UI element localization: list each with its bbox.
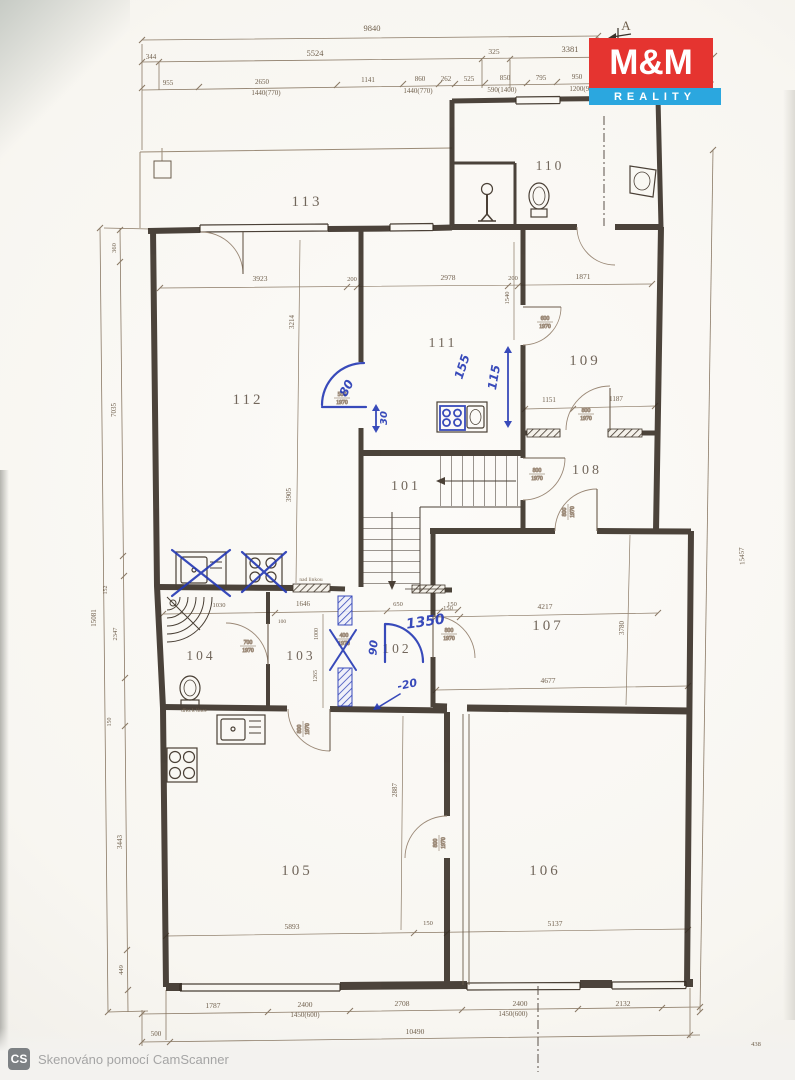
room-label-113: 113 <box>292 194 323 210</box>
section-marker-label: A <box>621 18 631 33</box>
dim-left-total: 15081 <box>90 609 98 627</box>
pen-note-90: 90 <box>366 639 380 656</box>
door-size-label-800f: 8001970 <box>433 835 447 851</box>
dim-1030: 1030 <box>213 602 226 609</box>
door-height: 1970 <box>570 506 576 518</box>
toilet-icon-104 <box>180 676 200 708</box>
dim-window-590: 590(1400) <box>487 86 517 94</box>
pen-stove-icon-111 <box>440 406 465 430</box>
dim-525: 525 <box>464 75 475 83</box>
stove-icon-112 <box>246 554 282 586</box>
room-label-112: 112 <box>233 392 264 408</box>
mm-reality-logo: M&M REALITY <box>589 38 721 105</box>
dim-950: 950 <box>572 73 583 81</box>
door-width: 800 <box>433 839 439 848</box>
pen-note-minus20: -20 <box>396 676 418 693</box>
shower-icon-104 <box>167 597 212 642</box>
door-104: 7001970 <box>226 623 268 665</box>
dim-window-1450a: 1450(600) <box>290 1011 320 1019</box>
door-width: 700 <box>244 640 253 646</box>
pen-note-155: 155 <box>452 353 473 381</box>
logo-reality-text: REALITY <box>589 88 721 105</box>
door-size-label-800a: 8001970 <box>578 408 594 422</box>
floorplan-drawing: 9840 344 5524 325 3381 955 2650 1141 860… <box>0 0 795 1080</box>
dim-1265: 1265 <box>313 670 319 682</box>
dim-chain-bottom: 1787 2400 1450(600) 2708 2400 1450(600) … <box>139 988 761 1048</box>
door-111-to-109: 6001970 <box>523 307 561 345</box>
terrace-outline-113 <box>140 148 452 228</box>
pen-arrow-115 <box>504 346 512 428</box>
dim-150-mid: 150 <box>447 601 457 608</box>
note-nad-linkou: nad linkou <box>299 577 323 583</box>
room-label-111: 111 <box>429 336 458 351</box>
pen-note-115: 115 <box>485 364 503 391</box>
toilet-icon-110 <box>529 183 549 217</box>
door-height: 1970 <box>336 400 348 406</box>
dim-150-bottom: 150 <box>423 920 433 927</box>
door-height: 1970 <box>242 648 254 654</box>
dim-1787: 1787 <box>206 1001 221 1010</box>
dim-2650: 2650 <box>255 78 270 86</box>
dim-4677: 4677 <box>541 676 556 685</box>
dim-2347: 2347 <box>112 627 119 641</box>
dim-200a: 200 <box>347 276 357 283</box>
door-size-label-800d: 8001970 <box>441 628 457 642</box>
camscanner-badge-icon: CS <box>8 1048 30 1070</box>
sink-icon-110 <box>630 166 656 197</box>
camscanner-text: Skenováno pomocí CamScanner <box>38 1052 229 1067</box>
room-label-103: 103 <box>286 648 315 663</box>
door-101-to-108: 8001970 <box>523 458 565 500</box>
dim-2978: 2978 <box>441 273 456 282</box>
dim-438: 438 <box>751 1041 761 1048</box>
door-width: 800 <box>445 628 454 634</box>
dim-3923: 3923 <box>253 274 268 283</box>
dim-262: 262 <box>441 75 452 83</box>
dim-chain-right: 15457 <box>697 147 746 1015</box>
door-size-label-800b: 8001970 <box>529 468 545 482</box>
dim-5893: 5893 <box>285 922 300 931</box>
dim-150-left: 150 <box>107 718 113 727</box>
dim-1151: 1151 <box>542 396 556 404</box>
dim-2887: 2887 <box>391 783 399 798</box>
dim-window-1450b: 1450(600) <box>498 1010 528 1018</box>
door-width: 800 <box>562 508 568 517</box>
door-width: 800 <box>533 468 542 474</box>
lamp-icon-110 <box>478 184 496 222</box>
door-size-label-700: 7001970 <box>240 640 256 654</box>
dim-850: 850 <box>500 74 511 82</box>
dim-1646: 1646 <box>296 600 311 608</box>
dim-152: 152 <box>103 586 109 595</box>
dim-2400a: 2400 <box>298 1000 313 1009</box>
door-to-105: 8001970 <box>288 709 330 751</box>
note-drez: dřez k lince <box>181 708 207 714</box>
room-label-101: 101 <box>391 479 421 494</box>
logo-mm-text: M&M <box>589 38 713 88</box>
dim-window-1440a: 1440(770) <box>251 89 281 97</box>
door-to-106: 8001970 <box>405 816 447 858</box>
room-label-109: 109 <box>569 353 601 369</box>
dim-1187: 1187 <box>609 395 623 403</box>
door-height: 1970 <box>531 476 543 482</box>
dim-top-total: 9840 <box>364 23 381 33</box>
dim-chain-left: 15081 360 7035 152 2347 150 3443 449 <box>90 225 150 1015</box>
door-110-to-109 <box>577 227 615 265</box>
door-height: 1970 <box>580 416 592 422</box>
room-label-107: 107 <box>532 618 564 634</box>
dim-449: 449 <box>118 965 125 975</box>
door-height: 1970 <box>539 324 551 330</box>
dim-2400b: 2400 <box>513 999 528 1008</box>
dim-325: 325 <box>488 47 500 56</box>
dim-4217: 4217 <box>538 602 553 611</box>
room-label-102: 102 <box>382 641 411 656</box>
room-label-110: 110 <box>536 158 565 173</box>
sink-icon-105 <box>217 715 265 744</box>
door-height: 1970 <box>441 837 447 849</box>
scanned-floorplan-page: 9840 344 5524 325 3381 955 2650 1141 860… <box>0 0 795 1080</box>
dim-1000: 1000 <box>314 628 320 640</box>
dim-5524: 5524 <box>307 48 325 58</box>
dim-window-1440b: 1440(770) <box>403 87 433 95</box>
staircase <box>363 455 523 592</box>
dim-1540: 1540 <box>504 292 511 305</box>
dim-860: 860 <box>415 75 426 83</box>
door-width: 600 <box>541 316 550 322</box>
dim-3214: 3214 <box>288 315 296 330</box>
camscanner-watermark: CS Skenováno pomocí CamScanner <box>8 1048 229 1070</box>
room-label-105: 105 <box>281 863 313 879</box>
dash-dot-lines <box>538 116 604 1072</box>
door-height: 1970 <box>443 636 455 642</box>
dim-795: 795 <box>536 74 547 82</box>
dim-right-total: 15457 <box>738 547 747 565</box>
dim-650: 650 <box>393 601 403 608</box>
pen-note-30: 30 <box>379 411 390 425</box>
dim-3780: 3780 <box>618 621 626 636</box>
dim-7035: 7035 <box>110 403 118 418</box>
dim-3905: 3905 <box>285 488 293 503</box>
room-label-108: 108 <box>572 463 602 478</box>
door-108-to-107: 8001970 <box>555 489 597 531</box>
dim-1141: 1141 <box>361 76 375 84</box>
dim-344: 344 <box>146 53 157 61</box>
dim-10490: 10490 <box>406 1027 425 1036</box>
dim-500: 500 <box>151 1030 162 1038</box>
door-size-label-800c: 8001970 <box>562 504 576 520</box>
dim-2708: 2708 <box>395 999 410 1008</box>
door-113 <box>201 232 243 274</box>
door-width: 800 <box>582 408 591 414</box>
dim-200b: 200 <box>508 275 518 282</box>
dim-360: 360 <box>111 243 118 253</box>
dim-5137: 5137 <box>548 919 563 928</box>
room-label-106: 106 <box>529 863 561 879</box>
pen-note-1350: 1350 <box>405 611 446 632</box>
door-size-label-600: 6001970 <box>537 316 553 330</box>
door-width: 800 <box>297 725 303 734</box>
door-width: 400 <box>340 633 349 639</box>
dim-100: 100 <box>278 619 287 625</box>
room-label-104: 104 <box>186 648 215 663</box>
dim-955: 955 <box>163 79 174 87</box>
dim-2132: 2132 <box>616 999 631 1008</box>
thin-partitions <box>463 714 469 985</box>
sink-unit-icon-112 <box>176 552 226 588</box>
dim-3381: 3381 <box>562 44 579 54</box>
pen-hatched-walls <box>338 596 352 706</box>
door-size-label-800e: 8001970 <box>297 721 311 737</box>
door-height: 1970 <box>305 723 311 735</box>
dim-3443: 3443 <box>116 835 124 850</box>
stove-icon-105 <box>167 748 197 782</box>
dim-1871: 1871 <box>576 272 591 281</box>
